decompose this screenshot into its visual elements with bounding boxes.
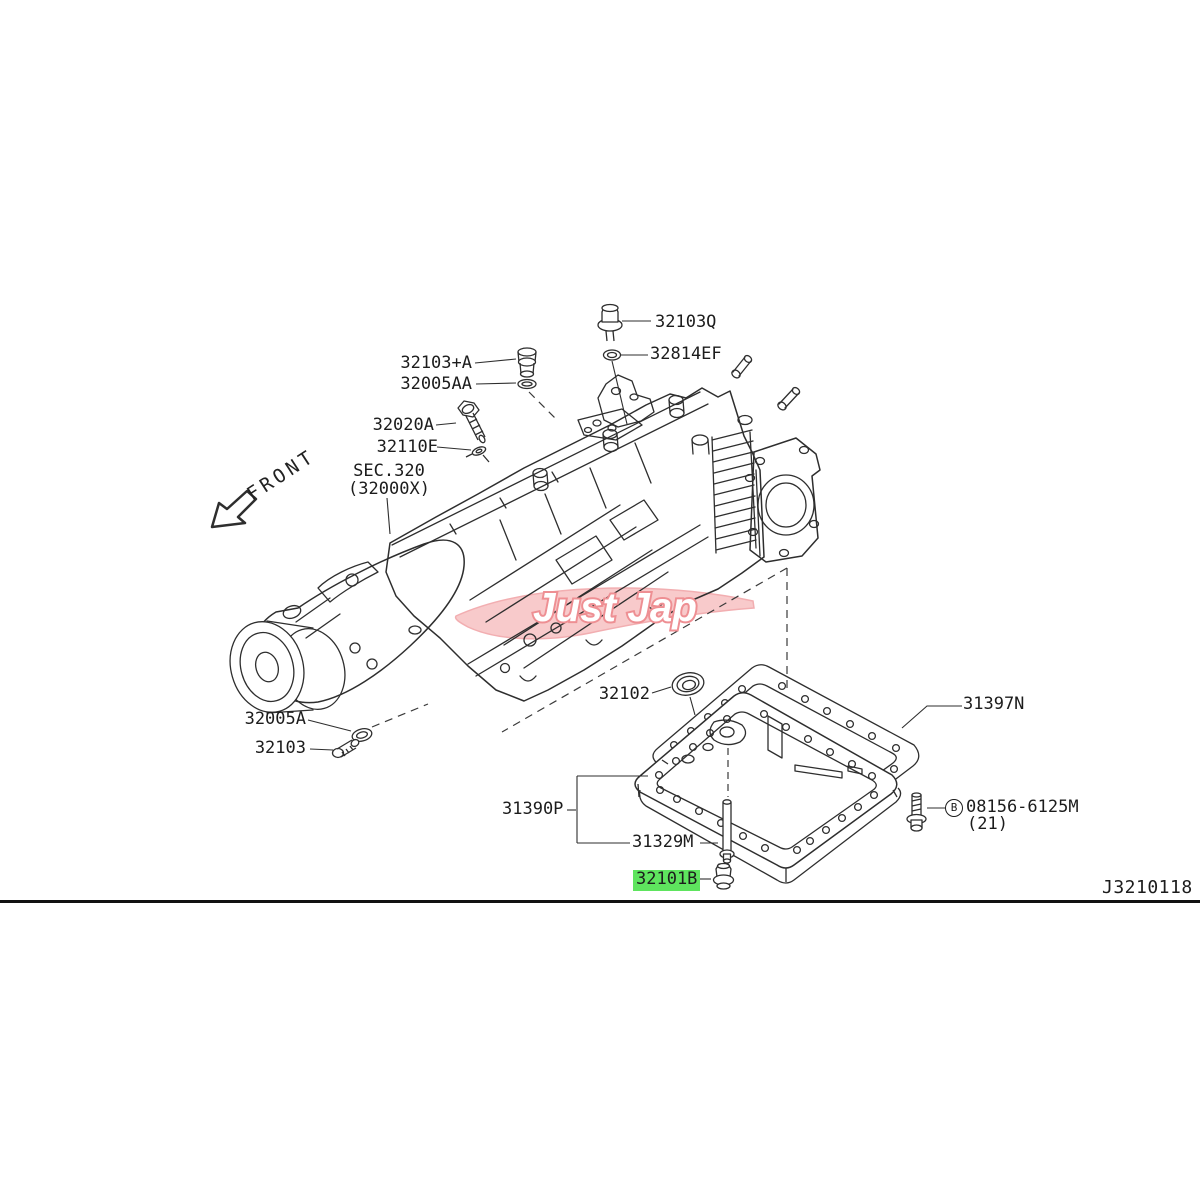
shift-bosses xyxy=(533,396,752,491)
parts-diagram: Just Jap 32103Q 32814EF 32103+A 32005AA … xyxy=(0,0,1200,1200)
label-32103: 32103 xyxy=(254,740,306,758)
label-32814EF: 32814EF xyxy=(650,346,722,364)
bottom-rule xyxy=(0,900,1200,903)
drawing-number: J3210118 xyxy=(1102,877,1193,898)
label-31390P: 31390P xyxy=(502,801,563,819)
label-31329M: 31329M xyxy=(632,834,693,852)
shaft-stubs xyxy=(730,354,801,411)
watermark-text: Just Jap xyxy=(533,584,697,630)
label-32110E: 32110E xyxy=(376,439,438,457)
label-32103A: 32103+A xyxy=(396,355,472,373)
watermark: Just Jap xyxy=(533,584,697,630)
section-ref: SEC.320 (32000X) xyxy=(348,463,430,499)
label-08156-qty: (21) xyxy=(967,816,1008,834)
diagram-art: Just Jap xyxy=(0,0,1200,1200)
washer-icon-32005AA xyxy=(518,380,536,389)
plug-icon-32103 xyxy=(333,738,361,757)
drain-plug-icon-32101B xyxy=(714,864,734,890)
transmission-drawing xyxy=(220,354,820,721)
bolt-icon-08156 xyxy=(907,793,926,831)
plug-icon-32103A xyxy=(518,348,536,377)
label-32020A: 32020A xyxy=(372,417,434,435)
clip-icon-32110E xyxy=(466,445,489,462)
bolt-icon-32020A xyxy=(458,401,486,444)
oil-pan-31390P-drawing xyxy=(635,693,901,883)
seal-icon-32102 xyxy=(670,670,706,698)
label-32102: 32102 xyxy=(598,686,650,704)
label-32103Q: 32103Q xyxy=(655,314,716,332)
label-31397N: 31397N xyxy=(963,696,1024,714)
label-32005AA: 32005AA xyxy=(396,376,472,394)
label-32101B-highlighted[interactable]: 32101B xyxy=(633,870,700,891)
output-flange xyxy=(220,613,354,721)
bolt-icon-32103Q xyxy=(598,305,622,342)
section-ref-line2: (32000X) xyxy=(348,481,430,499)
label-32005A: 32005A xyxy=(242,711,306,729)
prefix-b-badge: B xyxy=(945,799,963,817)
washer-icon-32814EF xyxy=(604,350,621,360)
